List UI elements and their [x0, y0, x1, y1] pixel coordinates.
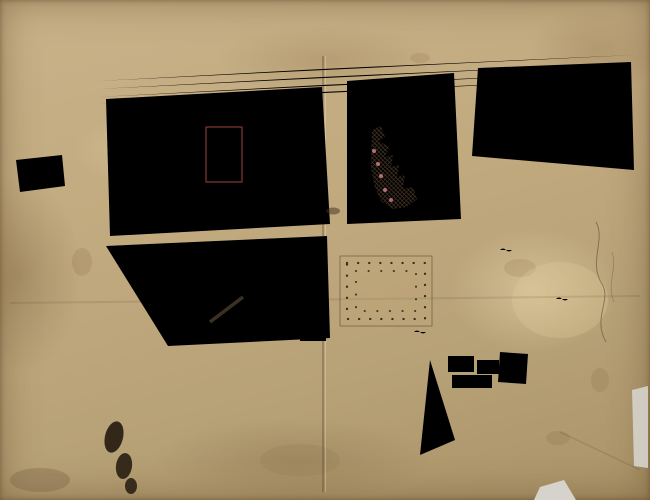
map-drawing — [0, 0, 650, 500]
scan-background: Margaretha SchuleTrankgasseDomDomhofFran… — [0, 0, 650, 500]
map-sheet: Margaretha SchuleTrankgasseDomDomhofFran… — [0, 0, 650, 500]
